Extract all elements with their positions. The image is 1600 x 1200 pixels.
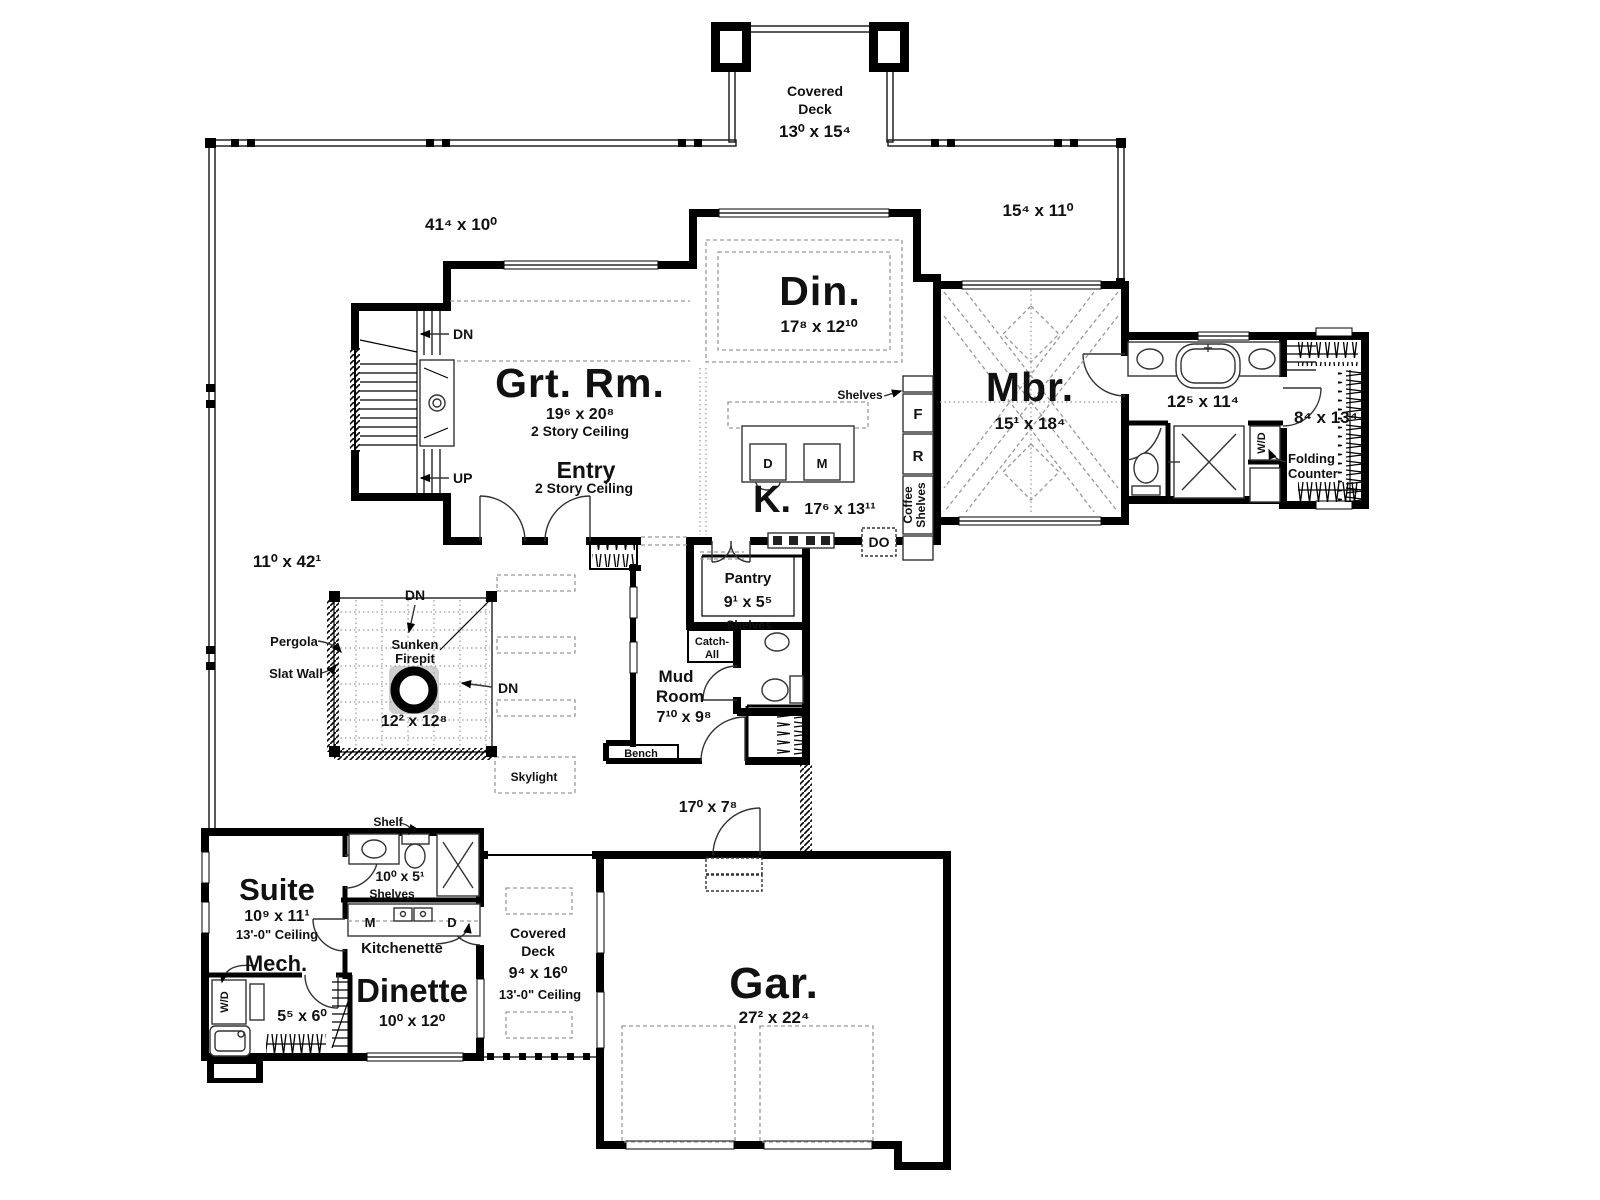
cooktop-icon	[768, 533, 834, 548]
dim-mud-room: 7¹⁰ x 9⁸	[657, 709, 712, 726]
dim-suite-bath: 10⁰ x 5¹	[375, 868, 425, 884]
south-deck-ceiling-note: 13'-0" Ceiling	[499, 987, 581, 1002]
firepit-icon	[389, 666, 439, 714]
kitchenette-m-label: M	[365, 915, 376, 930]
island-microwave-label: M	[817, 456, 828, 471]
refrigerator-label: R	[913, 448, 924, 465]
catch-all-label-1: Catch-	[695, 636, 730, 648]
island-dishwasher-label: D	[763, 456, 772, 471]
room-label-great-room: Grt. Rm.	[495, 360, 665, 406]
slat-wall-bottom	[334, 748, 492, 760]
room-label-dining: Din.	[779, 268, 860, 314]
dim-garage: 27² x 22⁴	[739, 1008, 810, 1027]
kitchen-island	[728, 402, 868, 490]
shelves-label-suite: Shelves	[369, 887, 415, 901]
firepit-label-1: Sunken	[392, 637, 439, 652]
stairs-dn-label: DN	[453, 326, 473, 342]
dim-master-bath: 12⁵ x 11⁴	[1167, 392, 1239, 411]
dim-great-room: 19⁶ x 20⁸	[546, 406, 614, 423]
fireplace-icon	[420, 360, 454, 446]
folding-counter-surface	[1250, 468, 1280, 502]
dim-dinette: 10⁰ x 12⁰	[379, 1013, 446, 1030]
mech-wd-label: W/D	[219, 991, 231, 1012]
coffee-shelves-label-2: Shelves	[914, 482, 928, 528]
floor-plan: Covered Deck 13⁰ x 15⁴ 41⁴ x 10⁰ 15⁴ x 1…	[0, 0, 1600, 1200]
mud-closet-hanging	[777, 708, 803, 756]
room-label-kitchen: K.	[753, 479, 791, 521]
slat-screen	[350, 348, 360, 452]
dim-south-deck: 9⁴ x 16⁰	[509, 965, 568, 982]
dim-suite: 10⁹ x 11¹	[244, 908, 309, 925]
dim-dining: 17⁸ x 12¹⁰	[780, 317, 857, 336]
room-label-dinette: Dinette	[356, 972, 468, 1009]
room-label-kitchenette: Kitchenette	[361, 940, 443, 957]
deck-top-dim: 13⁰ x 15⁴	[779, 122, 851, 141]
pergola-dn-label-top: DN	[405, 587, 425, 603]
dim-kitchen: 17⁶ x 13¹¹	[804, 501, 875, 518]
dim-mech: 5⁵ x 6⁰	[277, 1008, 327, 1025]
south-deck-label-1: Covered	[510, 925, 566, 941]
deck-topleft-dim: 41⁴ x 10⁰	[425, 215, 497, 234]
folding-counter-label-2: Counter	[1288, 466, 1338, 481]
deck-right-dim: 15⁴ x 11⁰	[1002, 201, 1073, 220]
great-room-ceiling-note: 2 Story Ceiling	[531, 423, 629, 439]
dim-firepit: 12² x 12⁸	[381, 713, 447, 730]
dim-walkway: 17⁰ x 7⁸	[679, 799, 737, 816]
toilet-icon	[1132, 453, 1160, 495]
shelf-label: Shelf	[373, 815, 403, 829]
suite-ceiling-note: 13'-0" Ceiling	[236, 927, 318, 942]
stairs-up-label: UP	[453, 470, 472, 486]
freezer-label: F	[913, 406, 922, 423]
kitchenette-d-label: D	[447, 915, 456, 930]
room-label-pantry: Pantry	[725, 570, 772, 587]
deck-top-label-2: Deck	[798, 101, 832, 117]
dim-master-closet: 8⁴ x 13⁴	[1294, 408, 1358, 427]
pergola-dn-label-right: DN	[498, 680, 518, 696]
firepit-label-2: Firepit	[395, 651, 435, 666]
coffee-shelves-label-1: Coffee	[901, 486, 915, 524]
skylight-label: Skylight	[511, 770, 558, 784]
coat-closet	[592, 545, 635, 567]
slat-wall-label: Slat Wall	[269, 666, 323, 681]
folding-counter-label-1: Folding	[1288, 451, 1335, 466]
room-label-master: Mbr.	[986, 364, 1074, 410]
deck-pillar	[711, 22, 909, 72]
dim-master: 15¹ x 18⁴	[995, 414, 1066, 433]
south-deck-label-2: Deck	[521, 943, 555, 959]
deck-top-label-1: Covered	[787, 83, 843, 99]
catch-all-label-2: All	[705, 649, 719, 661]
powder-fixtures	[762, 633, 803, 703]
kitchen-cabinets	[903, 376, 933, 560]
suite-step	[207, 1059, 263, 1083]
shelves-label-pantry: Shelves	[726, 618, 772, 632]
bench-label: Bench	[624, 748, 658, 760]
room-label-mud-2: Room	[656, 687, 704, 706]
deck-left-dim: 11⁰ x 42¹	[253, 552, 322, 571]
room-label-mud-1: Mud	[659, 667, 694, 686]
room-label-garage: Gar.	[729, 959, 819, 1008]
slat-wall-left	[327, 598, 339, 752]
dim-pantry: 9¹ x 5⁵	[724, 594, 772, 611]
entry-ceiling-note: 2 Story Ceiling	[535, 480, 633, 496]
room-label-mech: Mech.	[245, 951, 307, 976]
washer-dryer-label: W/D	[1256, 432, 1268, 453]
room-label-suite: Suite	[239, 872, 315, 907]
shelves-label-kitchen: Shelves	[837, 388, 883, 402]
floor-plan-canvas: Covered Deck 13⁰ x 15⁴ 41⁴ x 10⁰ 15⁴ x 1…	[0, 0, 1600, 1200]
shower-icon	[1168, 426, 1244, 498]
double-oven-label: DO	[869, 534, 890, 550]
walkway-hatch	[800, 763, 812, 855]
pergola-label: Pergola	[270, 634, 318, 649]
